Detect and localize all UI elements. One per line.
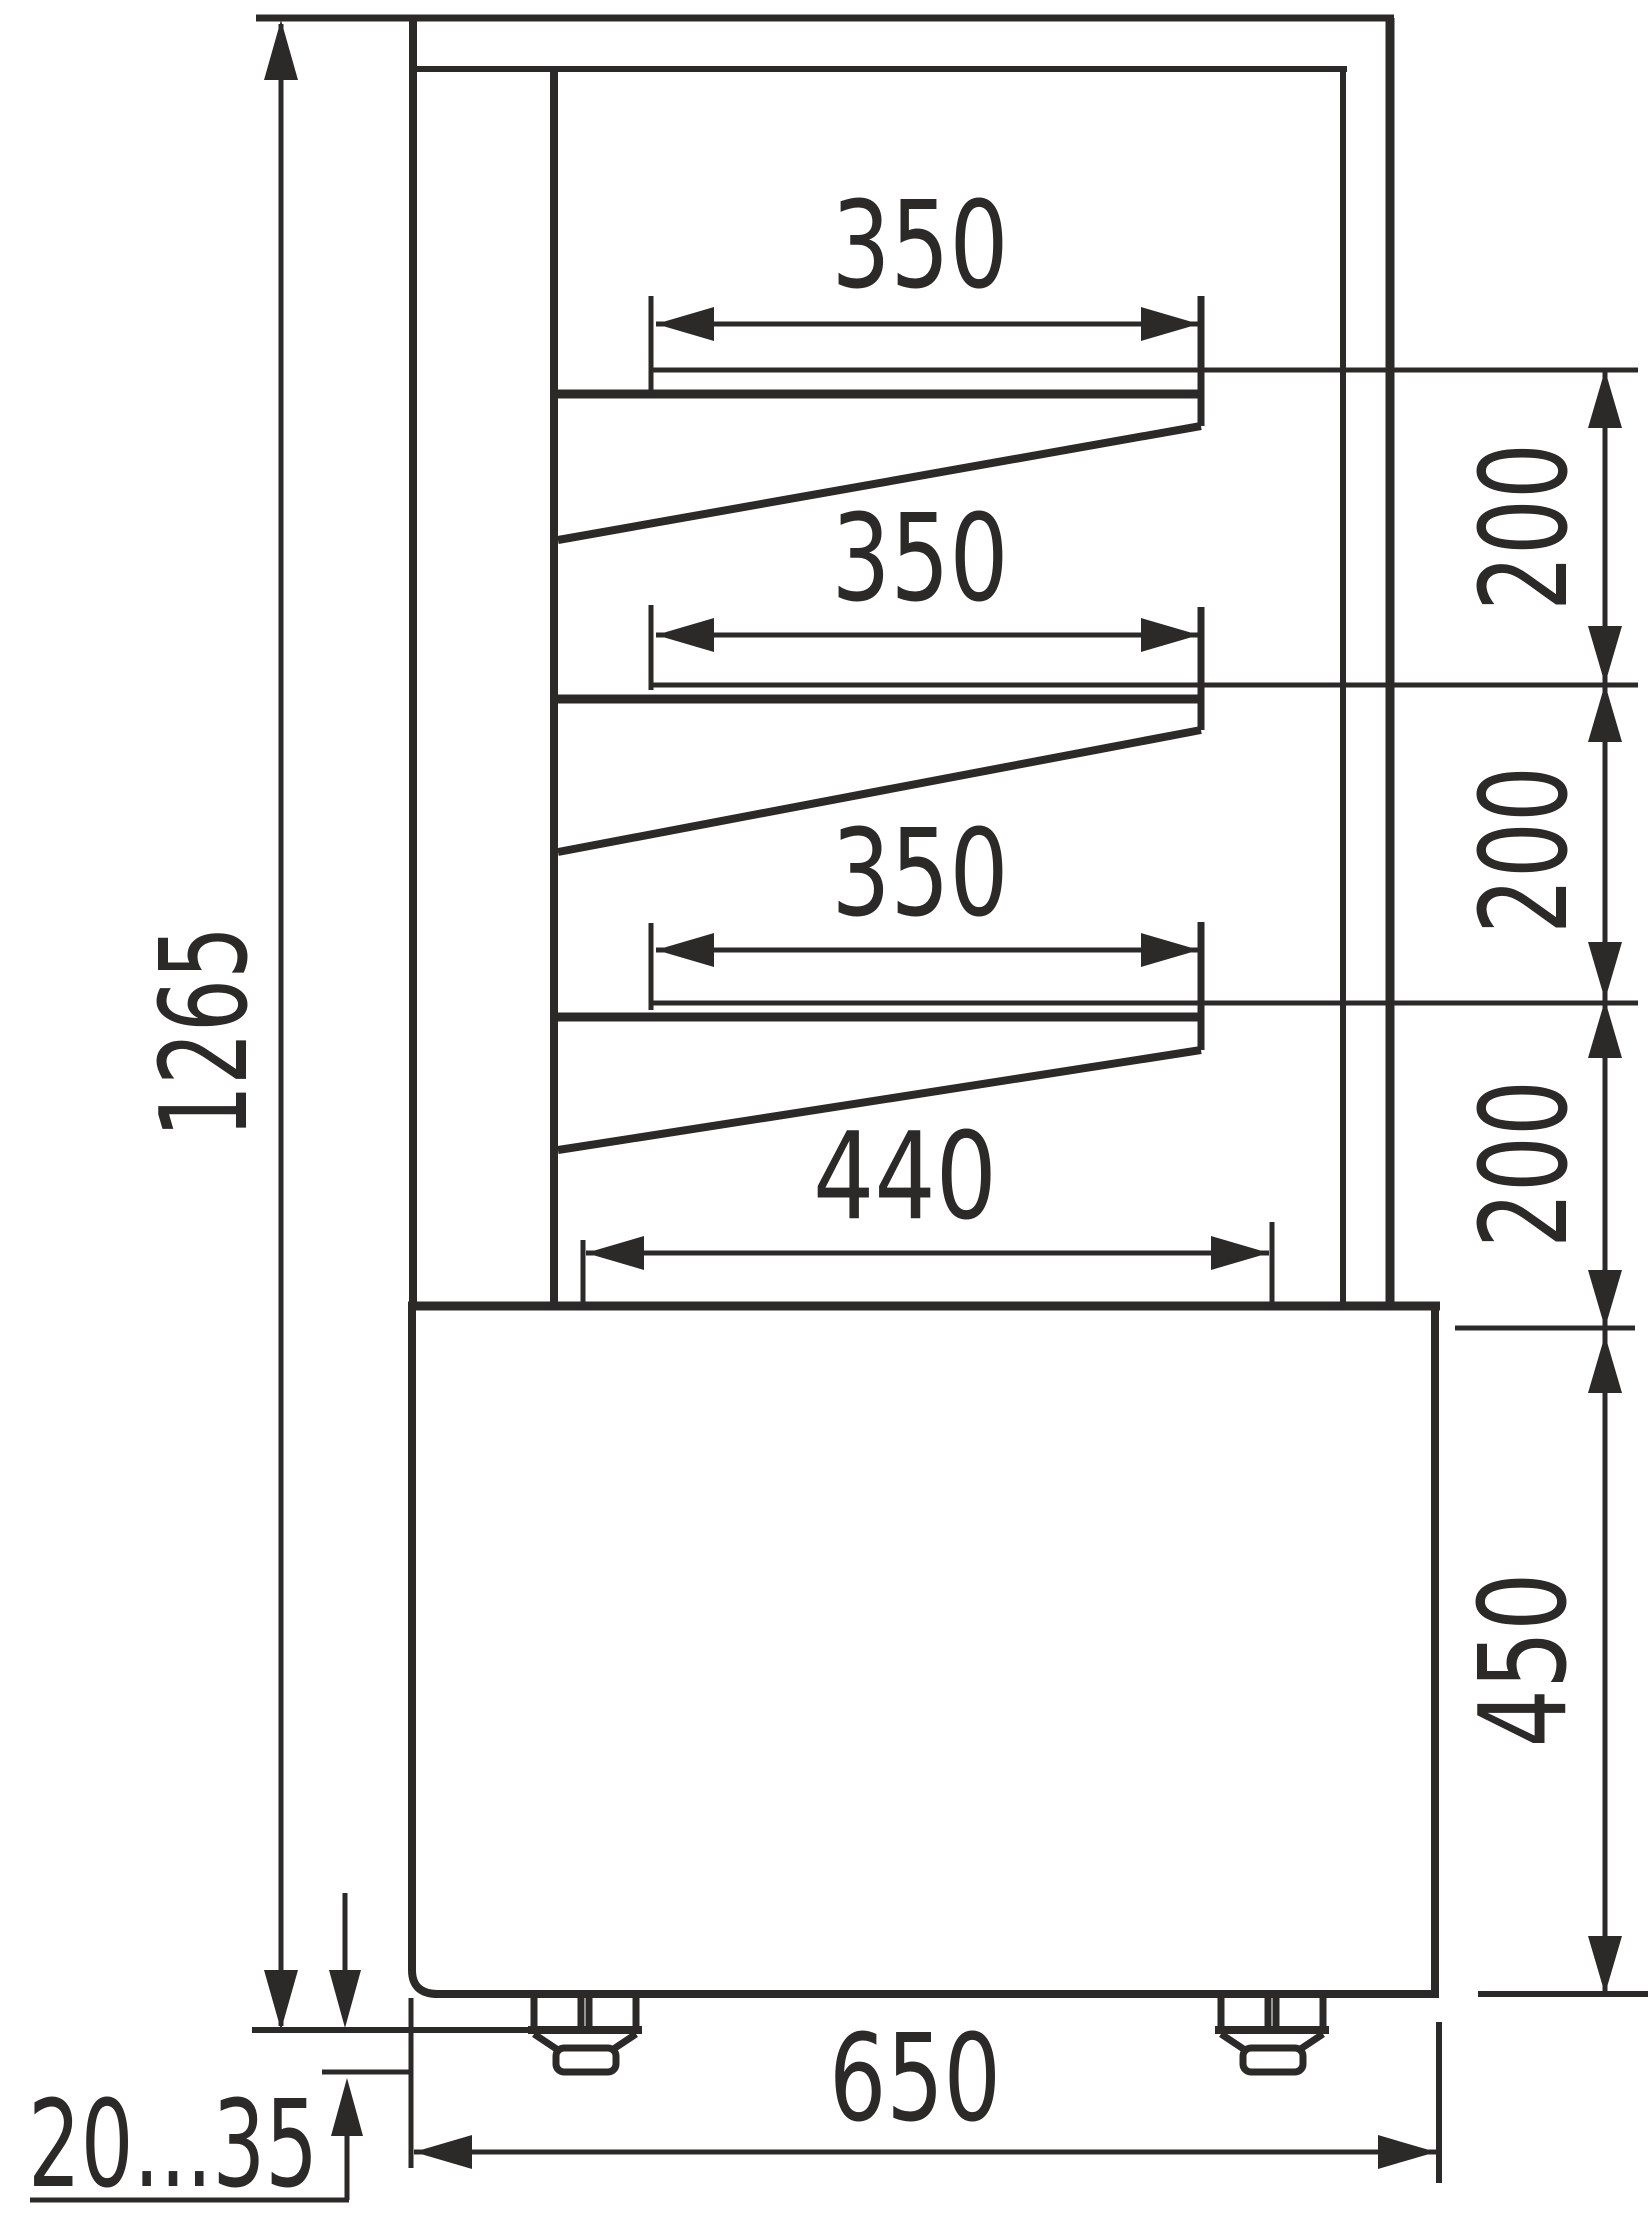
arrowhead-down <box>1588 626 1622 684</box>
arrowhead-up <box>331 2078 363 2136</box>
foot-pad <box>556 2048 616 2072</box>
display-case-drawing: 350 350 350 440 650 200 200 200 450 1265… <box>0 0 1650 2218</box>
arrowhead-left <box>586 1236 644 1270</box>
arrowhead-down <box>264 1970 298 2030</box>
label-base-height: 450 <box>1455 1573 1594 1748</box>
arrowhead-up <box>1588 684 1622 742</box>
arrowhead-down <box>1588 942 1622 1000</box>
foot-pad <box>1243 2048 1303 2072</box>
arrowhead-left <box>414 2135 472 2169</box>
technical-drawing-page: 350 350 350 440 650 200 200 200 450 1265… <box>0 0 1650 2218</box>
foot-taper-left <box>534 2034 558 2050</box>
arrowhead-right <box>1211 1236 1269 1270</box>
arrowhead-up <box>264 20 298 80</box>
label-shelf-gap-2: 200 <box>1456 766 1595 934</box>
arrowhead-up <box>1588 370 1622 428</box>
arrowhead-down <box>329 1970 361 2028</box>
arrowhead-left <box>656 307 714 341</box>
arrowhead-right <box>1378 2135 1436 2169</box>
arrowhead-up <box>1588 1000 1622 1058</box>
base-body-outline <box>412 1306 1435 1994</box>
label-shelf2-width: 350 <box>832 490 1009 629</box>
label-total-height: 1265 <box>136 926 275 1138</box>
arrowhead-up <box>1588 1335 1622 1393</box>
label-shelf1-width: 350 <box>832 177 1009 316</box>
arrowhead-right <box>1141 618 1199 652</box>
right-adjustable-foot <box>1215 1996 1329 2072</box>
arrowhead-down <box>1588 1936 1622 1994</box>
label-shelf-gap-1: 200 <box>1456 443 1595 611</box>
base-cabinet <box>408 1306 1440 1994</box>
label-foot-adjust-range: 20...35 <box>28 2076 318 2215</box>
arrowhead-down <box>1588 1270 1622 1328</box>
foot-taper-left <box>1221 2034 1245 2050</box>
label-shelf-gap-3: 200 <box>1456 1080 1595 1248</box>
label-shelf3-width: 350 <box>832 805 1009 944</box>
label-depth: 650 <box>829 2010 1001 2149</box>
left-adjustable-foot <box>528 1996 642 2072</box>
arrowhead-right <box>1141 307 1199 341</box>
arrowhead-left <box>656 933 714 967</box>
label-base-shelf-width: 440 <box>813 1108 997 1247</box>
arrowhead-left <box>656 618 714 652</box>
arrowhead-right <box>1141 933 1199 967</box>
